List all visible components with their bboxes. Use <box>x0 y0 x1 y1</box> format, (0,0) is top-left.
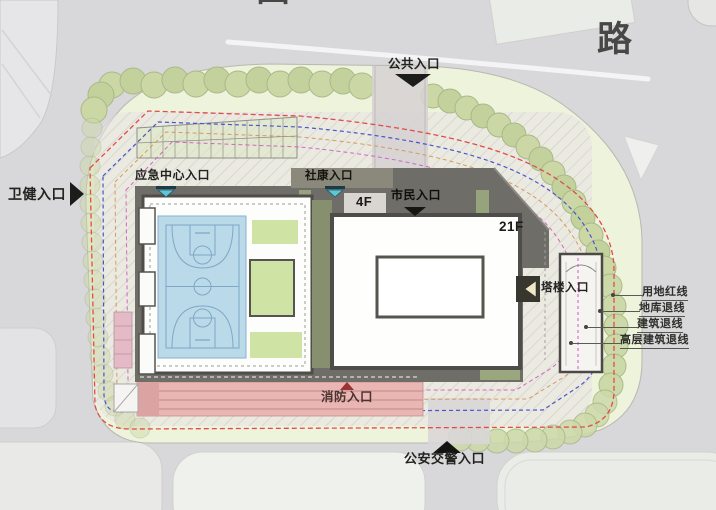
legend-leader-dot <box>611 293 615 297</box>
site-plan-drawing <box>0 0 716 510</box>
road-name-partial: 田 <box>256 0 290 9</box>
lawn-planter <box>250 260 294 316</box>
legend-leader-dot <box>584 325 588 329</box>
basketball-court <box>158 216 246 358</box>
dropoff-ramp <box>560 254 602 372</box>
police-entrance-label: 公安交警入口 <box>404 452 485 466</box>
courtyard <box>139 196 332 374</box>
clinic-entrance-bar <box>325 186 345 189</box>
podium-floor-tag: 4F <box>356 195 372 209</box>
block-bottom-left <box>0 442 162 510</box>
lawn <box>250 332 302 358</box>
courtyard-door <box>139 208 155 244</box>
citizen-entrance-label: 市民入口 <box>391 189 441 202</box>
block-bottom-right <box>497 452 716 510</box>
block-top-right-circle <box>688 0 716 26</box>
block-left-mid <box>0 328 56 428</box>
legend-highrise-setback: 高层建筑退线 <box>620 331 689 349</box>
public-entrance-label: 公共入口 <box>388 58 440 71</box>
legend-leader-line <box>615 295 643 296</box>
health-entrance-label: 卫健入口 <box>8 187 66 202</box>
legend-leader-dot <box>598 309 602 313</box>
courtyard-door <box>139 334 155 374</box>
tower-core <box>377 257 483 317</box>
legend-leader-dot <box>569 341 573 345</box>
emergency-entrance-bar <box>156 186 176 189</box>
roof-strip <box>312 200 332 368</box>
lawn <box>252 220 298 244</box>
tower-floor-tag: 21F <box>499 220 524 234</box>
tower-entrance-label: 塔楼入口 <box>541 282 589 294</box>
emergency-entrance-label: 应急中心入口 <box>135 169 210 182</box>
tower-building <box>332 215 545 368</box>
block-bottom-center <box>173 452 425 510</box>
fire-entrance-label: 消防入口 <box>321 391 373 404</box>
traffic-island <box>624 136 659 180</box>
block-top-left <box>0 0 58 158</box>
police-entrance-walkway <box>428 398 490 444</box>
clinic-entrance-label: 社康入口 <box>305 170 353 182</box>
legend-leader-line <box>602 311 640 312</box>
courtyard-door <box>139 272 155 306</box>
legend-leader-line <box>588 327 638 328</box>
site-plan-canvas: 田 路 卫健入口 公共入口 应急中心入口 社康入口 市民入口 塔楼入口 消防入口… <box>0 0 716 510</box>
legend-leader-line <box>573 343 621 344</box>
road-name: 路 <box>597 22 632 59</box>
